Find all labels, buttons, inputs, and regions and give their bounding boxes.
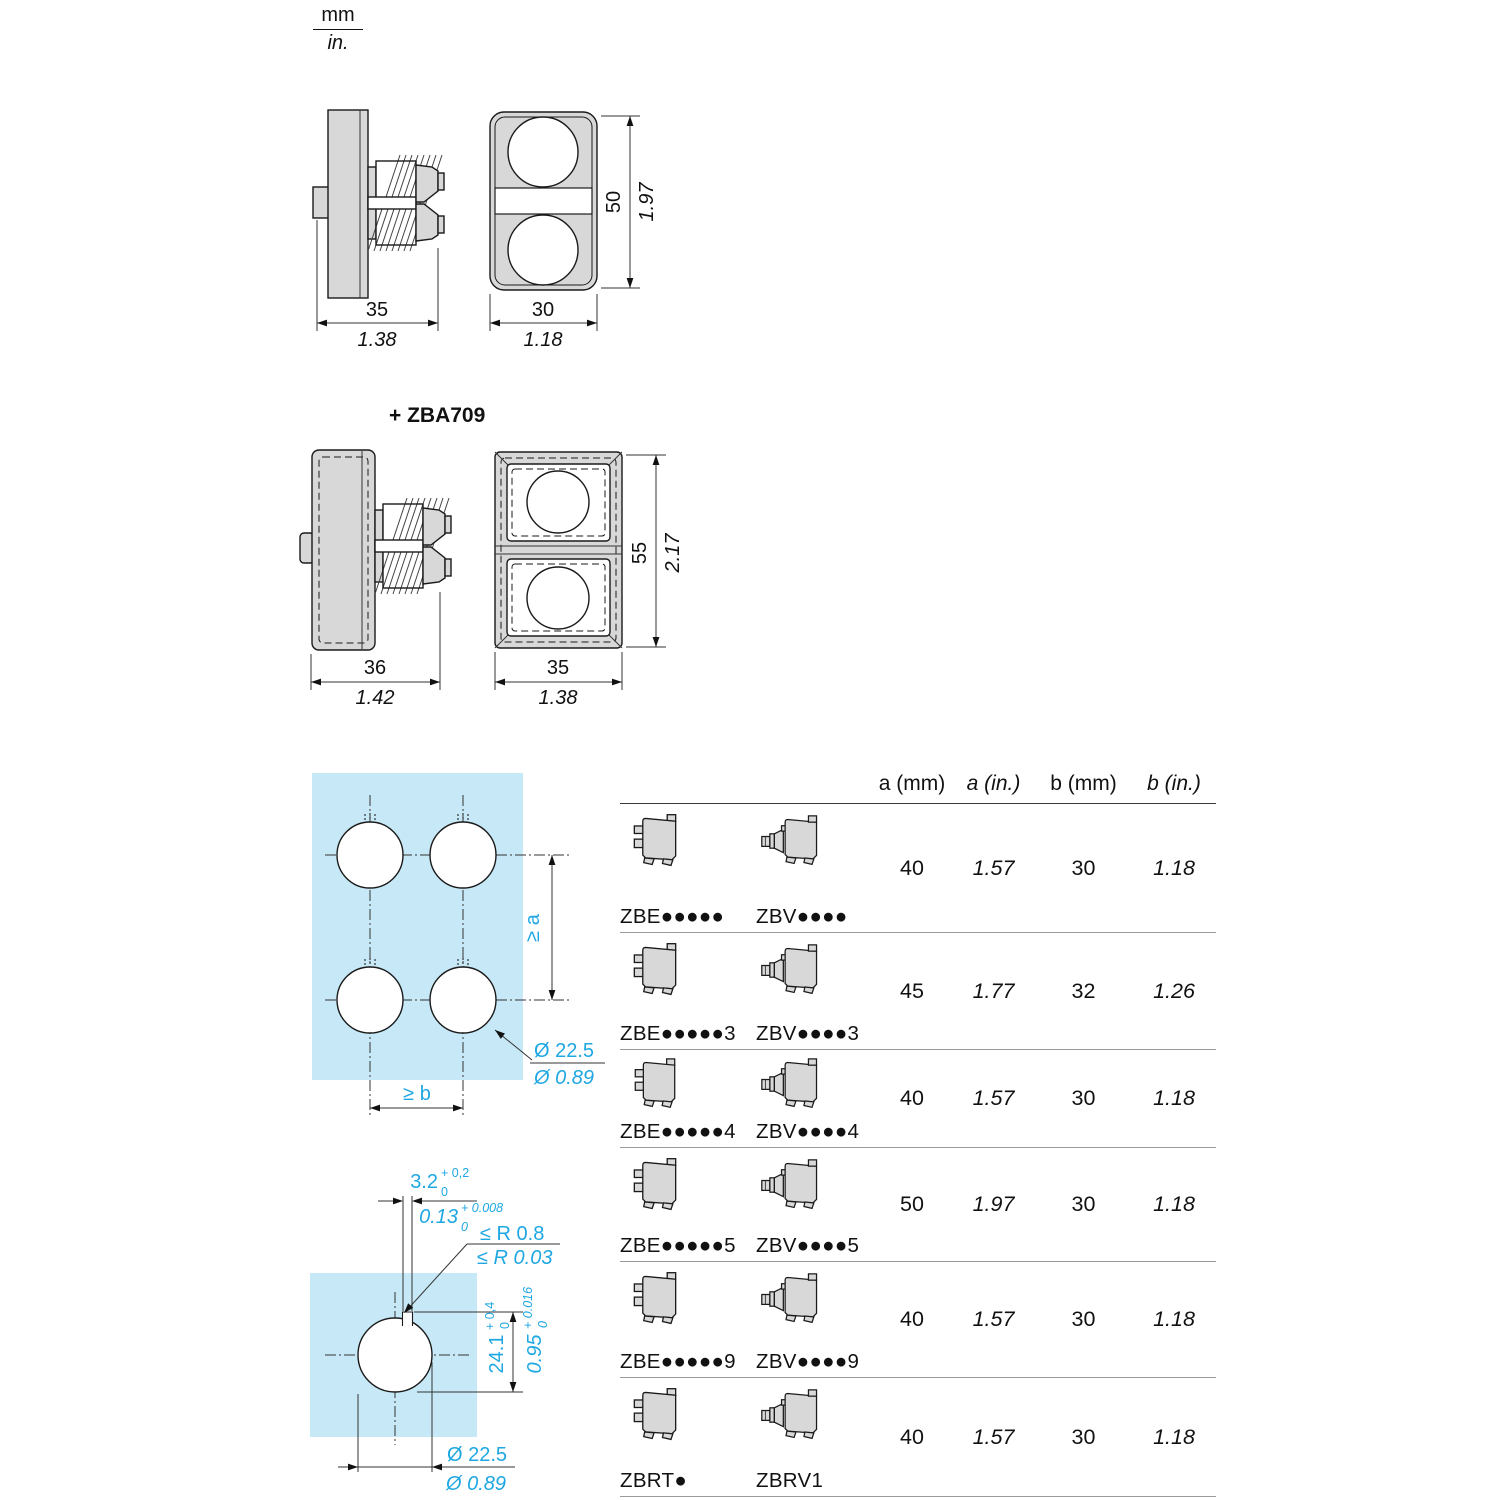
product-right: ZBV●●●●4 <box>756 1050 872 1147</box>
value-a-mm: 40 <box>872 1050 952 1147</box>
value-b-in: 1.18 <box>1132 1148 1216 1261</box>
product-left: ZBE●●●●●5 <box>620 1148 752 1261</box>
bezel-plate <box>328 110 368 298</box>
recess-in-tol-minus: 0 <box>536 1321 550 1328</box>
value-a-in: 1.97 <box>952 1148 1035 1261</box>
recess-in-tol-plus: + 0.016 <box>521 1287 535 1329</box>
contact-block-icon <box>624 1386 686 1444</box>
recess-mm-tol-minus: 0 <box>498 1322 512 1329</box>
lamp-block-icon <box>760 1386 830 1444</box>
table-row: ZBE●●●●●4 ZBV●●●●4 40 1.57 30 1.18 <box>620 1050 1216 1148</box>
drawing-pushbutton: 35 1.38 30 1.18 <box>280 88 700 360</box>
mounting-hole <box>430 822 496 888</box>
product-left: ZBE●●●●●4 <box>620 1050 752 1147</box>
value-a-mm: 40 <box>872 1378 952 1496</box>
unit-mm-label: mm <box>313 4 363 30</box>
product-left: ZBE●●●●●3 <box>620 933 752 1049</box>
side-view-zba: 36 1.42 <box>300 450 451 709</box>
product-ref: ZBV●●●●5 <box>756 1234 859 1258</box>
slot-width-mm-tol-plus: + 0,2 <box>441 1166 469 1180</box>
button-top <box>527 471 589 533</box>
radius-mm: ≤ R 0.8 <box>480 1223 544 1245</box>
slot-width-in-tol-minus: 0 <box>461 1220 468 1234</box>
zba709-title: + ZBA709 <box>389 404 485 428</box>
value-a-mm: 45 <box>872 933 952 1049</box>
value-b-mm: 30 <box>1035 1050 1132 1147</box>
dim-front-width-in: 1.38 <box>539 687 578 709</box>
slot-width-mm: 3.2 <box>410 1171 438 1193</box>
hole-dia-in: Ø 0.89 <box>445 1473 506 1495</box>
product-right: ZBV●●●● <box>756 804 872 932</box>
recess-mm-tol-plus: + 0,4 <box>483 1302 497 1330</box>
mounting-tab <box>313 187 329 218</box>
mounting-hole <box>337 967 403 1033</box>
product-icons-cell: ZBE●●●●●3 ZBV●●●●3 <box>620 933 872 1049</box>
value-b-mm: 30 <box>1035 1148 1132 1261</box>
panel-surface <box>312 773 523 1080</box>
value-a-in: 1.57 <box>952 804 1035 932</box>
product-ref: ZBV●●●●3 <box>756 1022 859 1046</box>
product-icons-cell: ZBE●●●●●4 ZBV●●●●4 <box>620 1050 872 1147</box>
button-bottom <box>508 215 578 285</box>
lamp-block-icon <box>760 941 830 999</box>
panel-cutout-detail: 3.2 + 0,2 0 0.13 + 0.008 0 ≤ R 0.8 ≤ R 0… <box>280 1130 625 1500</box>
product-left: ZBE●●●●●9 <box>620 1262 752 1377</box>
dim-35-zba: 35 1.38 <box>495 652 622 709</box>
drawing-zba709: 36 1.42 35 <box>280 440 710 720</box>
bezel-plate <box>312 450 375 650</box>
value-b-mm: 32 <box>1035 933 1132 1049</box>
product-ref: ZBE●●●●●5 <box>620 1234 736 1258</box>
header-a-in: a (in.) <box>952 772 1035 803</box>
contact-block-icon <box>624 812 686 870</box>
dim-front-height-in: 1.97 <box>636 182 658 222</box>
front-view: 30 1.18 50 1.97 <box>490 112 658 351</box>
dim-side-width-mm: 35 <box>366 299 388 321</box>
hole-dia-mm: Ø 22.5 <box>534 1040 594 1062</box>
product-icons-cell: ZBE●●●●●9 ZBV●●●●9 <box>620 1262 872 1377</box>
dim-side-width-mm: 36 <box>364 657 386 679</box>
header-products <box>620 796 872 803</box>
side-view: 35 1.38 <box>313 110 444 351</box>
product-ref: ZBV●●●●4 <box>756 1120 859 1144</box>
dim-55-zba: 55 2.17 <box>626 455 684 647</box>
dim-30: 30 1.18 <box>490 294 597 351</box>
value-b-mm: 30 <box>1035 1262 1132 1377</box>
product-ref: ZBE●●●●● <box>620 905 724 929</box>
marking-band <box>495 188 592 214</box>
recess-mm: 24.1 <box>486 1335 508 1374</box>
dim-front-width-mm: 30 <box>532 299 554 321</box>
dim-front-height-in: 2.17 <box>662 533 684 574</box>
table-header-row: a (mm) a (in.) b (mm) b (in.) <box>620 765 1216 804</box>
product-ref: ZBRT● <box>620 1469 687 1493</box>
product-ref: ZBRV1 <box>756 1469 823 1493</box>
header-b-mm: b (mm) <box>1035 772 1132 803</box>
value-b-in: 1.18 <box>1132 1262 1216 1377</box>
radius-in: ≤ R 0.03 <box>477 1247 552 1269</box>
value-b-mm: 30 <box>1035 1378 1132 1496</box>
recess-in: 0.95 <box>524 1334 546 1374</box>
product-ref: ZBE●●●●●9 <box>620 1350 736 1374</box>
dim-pitch-a: ≥ a <box>522 855 555 1000</box>
table-row: ZBRT● ZBRV1 40 1.57 30 1.18 <box>620 1378 1216 1497</box>
slot-width-mm-tol-minus: 0 <box>441 1185 448 1199</box>
value-a-mm: 40 <box>872 1262 952 1377</box>
table-row: ZBE●●●●●5 ZBV●●●●5 50 1.97 30 1.18 <box>620 1148 1216 1262</box>
product-right: ZBV●●●●3 <box>756 933 872 1049</box>
value-a-in: 1.57 <box>952 1262 1035 1377</box>
unit-indicator: mm in. <box>313 4 363 55</box>
table-row: ZBE●●●●●3 ZBV●●●●3 45 1.77 32 1.26 <box>620 933 1216 1050</box>
value-a-mm: 50 <box>872 1148 952 1261</box>
value-a-in: 1.77 <box>952 933 1035 1049</box>
dim-pitch-vertical: ≥ a <box>522 913 544 942</box>
panel-cutout-multiple: ≥ a Ø 22.5 Ø 0.89 ≥ b <box>280 760 625 1130</box>
dim-front-width-mm: 35 <box>547 657 569 679</box>
slot-width-in: 0.13 <box>419 1206 458 1228</box>
contact-block-dimension-table: a (mm) a (in.) b (mm) b (in.) ZBE●●●●● Z… <box>620 765 1216 1497</box>
table-row: ZBE●●●●● ZBV●●●● 40 1.57 30 1.18 <box>620 804 1216 933</box>
hole-dia-mm: Ø 22.5 <box>447 1444 507 1466</box>
button-bottom <box>527 567 589 629</box>
contact-block-icon <box>624 941 686 999</box>
value-b-in: 1.26 <box>1132 933 1216 1049</box>
value-b-in: 1.18 <box>1132 804 1216 932</box>
dim-side-width-in: 1.42 <box>356 687 395 709</box>
product-icons-cell: ZBRT● ZBRV1 <box>620 1378 872 1496</box>
lamp-block-icon <box>760 812 830 870</box>
value-b-in: 1.18 <box>1132 1050 1216 1147</box>
header-a-mm: a (mm) <box>872 772 952 803</box>
product-right: ZBV●●●●9 <box>756 1262 872 1377</box>
header-b-in: b (in.) <box>1132 772 1216 803</box>
hole-dia-in: Ø 0.89 <box>533 1067 594 1089</box>
dim-side-width-in: 1.38 <box>358 329 397 351</box>
contact-block-icon <box>624 1058 686 1110</box>
product-right: ZBV●●●●5 <box>756 1148 872 1261</box>
product-left: ZBE●●●●● <box>620 804 752 932</box>
unit-in-label: in. <box>313 30 363 55</box>
lamp-block-icon <box>760 1058 830 1110</box>
dim-50: 50 1.97 <box>601 116 658 288</box>
lamp-block-icon <box>760 1270 830 1328</box>
product-ref: ZBE●●●●●3 <box>620 1022 736 1046</box>
mounting-hole <box>358 1318 432 1392</box>
product-icons-cell: ZBE●●●●●5 ZBV●●●●5 <box>620 1148 872 1261</box>
product-right: ZBRV1 <box>756 1378 872 1496</box>
value-a-in: 1.57 <box>952 1050 1035 1147</box>
dim-front-height-mm: 55 <box>629 542 651 564</box>
dim-front-width-in: 1.18 <box>524 329 563 351</box>
value-a-in: 1.57 <box>952 1378 1035 1496</box>
contact-block-icon <box>624 1156 686 1214</box>
dim-pitch-b: ≥ b <box>370 1083 463 1111</box>
button-top <box>508 117 578 187</box>
front-view-zba: 35 1.38 55 2.17 <box>495 452 684 709</box>
dim-front-height-mm: 50 <box>603 191 625 213</box>
table-row: ZBE●●●●●9 ZBV●●●●9 40 1.57 30 1.18 <box>620 1262 1216 1378</box>
value-a-mm: 40 <box>872 804 952 932</box>
thread-mechanism <box>375 498 451 594</box>
thread-mechanism <box>368 155 444 251</box>
dim-pitch-horizontal: ≥ b <box>403 1083 431 1105</box>
mounting-hole <box>337 822 403 888</box>
mounting-hole <box>430 967 496 1033</box>
product-icons-cell: ZBE●●●●● ZBV●●●● <box>620 804 872 932</box>
lamp-block-icon <box>760 1156 830 1214</box>
catalog-dimensions-page: mm in. 35 1.38 <box>0 0 1500 1500</box>
product-ref: ZBE●●●●●4 <box>620 1120 736 1144</box>
value-b-in: 1.18 <box>1132 1378 1216 1496</box>
contact-block-icon <box>624 1270 686 1328</box>
product-left: ZBRT● <box>620 1378 752 1496</box>
value-b-mm: 30 <box>1035 804 1132 932</box>
slot-width-in-tol-plus: + 0.008 <box>461 1201 503 1215</box>
product-ref: ZBV●●●● <box>756 905 848 929</box>
product-ref: ZBV●●●●9 <box>756 1350 859 1374</box>
